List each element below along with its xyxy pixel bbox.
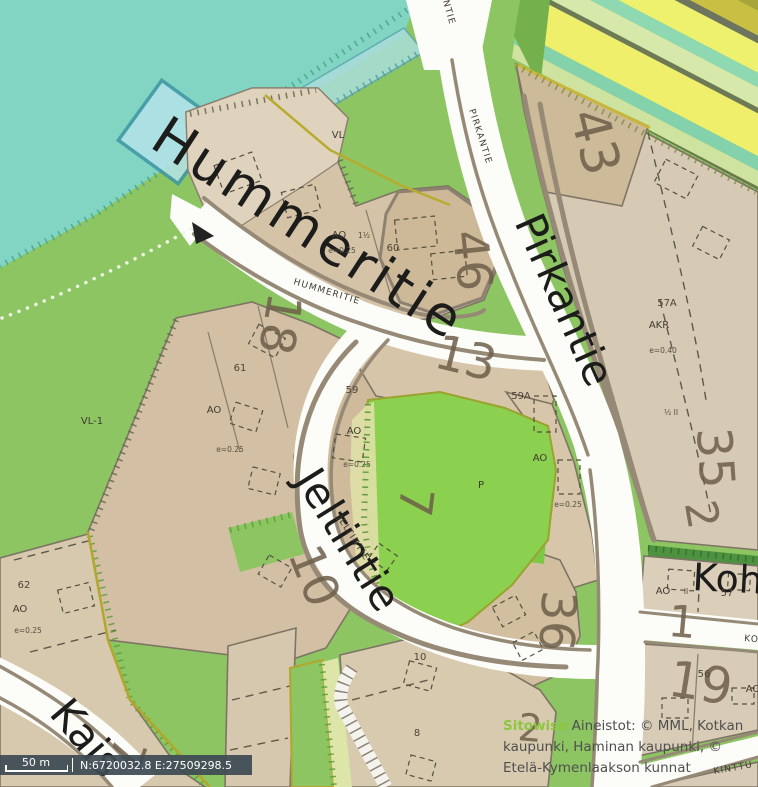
block-number-36: 36 [527, 589, 586, 653]
status-bar: 50 m N:6720032.8 E:27509298.5 [0, 755, 252, 775]
zoning-label-e025: e=0.25 [328, 246, 356, 255]
zoning-label-ii: II [684, 587, 688, 596]
parcel-number-59a: 59A [511, 391, 531, 402]
parcel-number-57a: 57A [657, 298, 677, 309]
attribution: Sitowise Aineistot: © MML, Kotkan kaupun… [503, 716, 755, 779]
parcel-number-59: 59 [346, 385, 359, 396]
parcel-number-56: 56 [698, 669, 711, 680]
scale-line [5, 770, 68, 772]
zoning-label-one-half: 1½ [358, 231, 370, 240]
street-label-ko: KO [744, 634, 758, 645]
zoning-label-e025: e=0.25 [14, 626, 42, 635]
scale-label: 50 m [0, 756, 72, 769]
zoning-label-ao: AO [347, 426, 362, 437]
zoning-label-vl: VL [332, 130, 345, 141]
block-number-46: 46 [441, 227, 503, 294]
zoning-label-akr: AKR [649, 320, 669, 331]
parcel-number-8: 8 [414, 728, 420, 739]
zoning-label-ao: AO [656, 586, 671, 597]
map-viewport[interactable]: Hummeritie Pirkantie Jeltintie Koh Kais … [0, 0, 758, 787]
block-number-1: 1 [666, 596, 698, 649]
map-canvas[interactable]: Hummeritie Pirkantie Jeltintie Koh Kais … [0, 0, 758, 787]
zoning-label-half-ii: ½ II [664, 408, 678, 417]
zoning-label-p: P [478, 480, 484, 491]
zoning-label-e025: e=0.25 [216, 445, 244, 454]
block-number-18: 18 [247, 289, 313, 359]
parcel-number-62: 62 [18, 580, 31, 591]
zoning-label-ao: AO [207, 405, 222, 416]
zoning-label-e025: e=0.25 [554, 500, 582, 509]
zoning-label-ao: AO [746, 684, 758, 695]
zoning-label-e025: e=0.25 [343, 460, 371, 469]
parcel-number-10: 10 [414, 652, 427, 663]
block-number-19: 19 [665, 650, 737, 717]
scale-bar: 50 m [0, 755, 72, 775]
sitowise-logo: Sitowise [503, 718, 567, 734]
zoning-label-ao: AO [332, 230, 347, 241]
coordinates-display: N:6720032.8 E:27509298.5 [73, 759, 232, 772]
zoning-label-ao: AO [533, 453, 548, 464]
block-number-35: 35 [685, 425, 745, 490]
parcel-number-61: 61 [234, 363, 247, 374]
zoning-label-e040: e=0.40 [649, 346, 677, 355]
parcel-number-60: 60 [387, 243, 400, 254]
parcel-number-57: 57 [721, 588, 734, 599]
zoning-label-vl1: VL-1 [81, 416, 103, 427]
zoning-label-ao: AO [13, 604, 28, 615]
